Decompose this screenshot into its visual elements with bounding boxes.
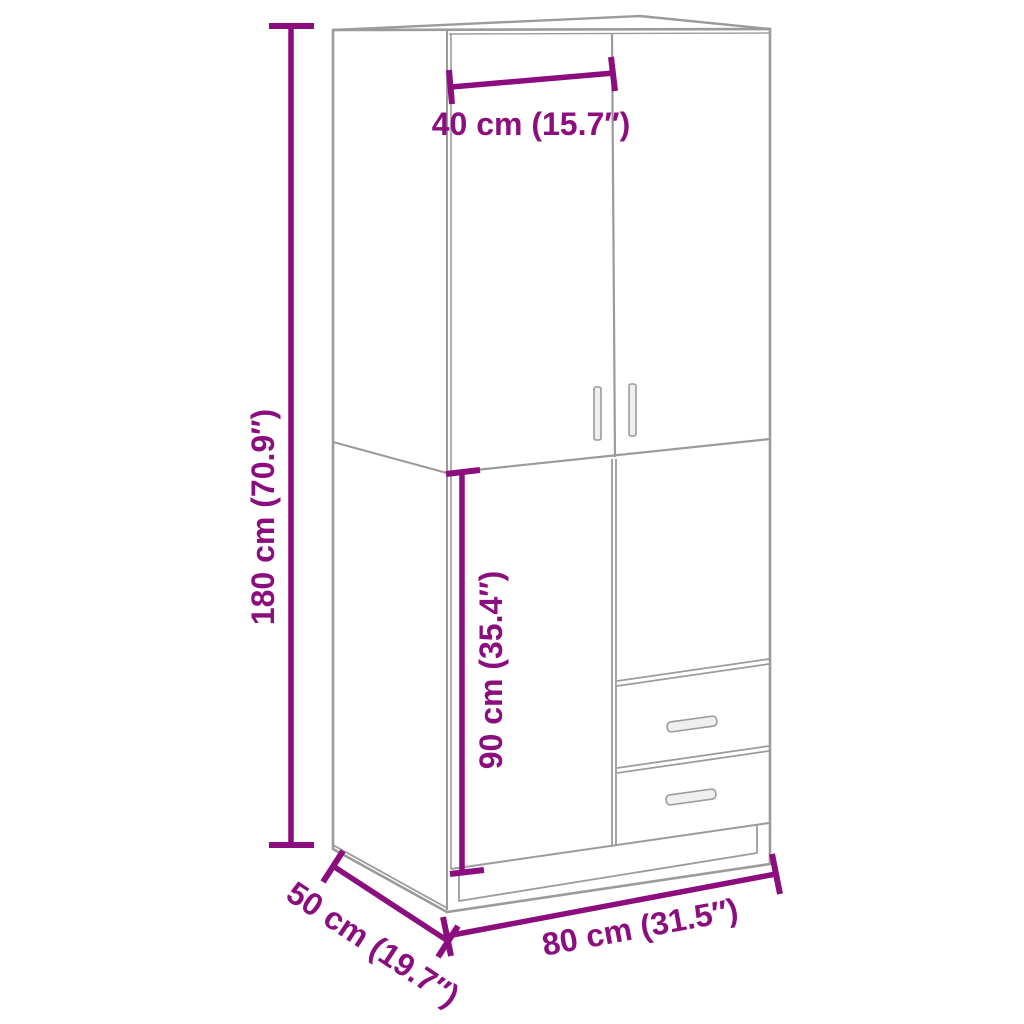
door-width-dimension-label: 40 cm (15.7″) <box>432 108 631 140</box>
dimension-lines <box>269 25 780 957</box>
section-divider-side <box>333 442 447 473</box>
wardrobe-drawing <box>0 0 1024 1024</box>
wardrobe-body <box>333 29 770 912</box>
door-width-dimension-line <box>449 57 615 104</box>
right-door-handle <box>629 384 636 436</box>
plinth-inset <box>459 824 757 901</box>
door-top-seam <box>449 33 769 34</box>
drawer1-handle <box>667 716 718 733</box>
drawer1-top-seam-inner <box>617 664 769 686</box>
wardrobe-outline <box>333 16 770 912</box>
drawer1-top-seam <box>617 659 769 681</box>
left-door-handle <box>594 387 601 440</box>
dimension-diagram: 180 cm (70.9″) 40 cm (15.7″) 90 cm (35.4… <box>0 0 1024 1024</box>
height-dimension-label: 180 cm (70.9″) <box>247 409 279 625</box>
drawer-gap-seam-inner <box>617 751 769 773</box>
drawer-gap-seam <box>617 746 769 768</box>
section-divider <box>447 439 770 473</box>
lower-height-dimension-label: 90 cm (35.4″) <box>475 571 507 770</box>
panel-bottom-seam <box>451 823 769 869</box>
upper-door-divider <box>612 33 615 457</box>
drawer2-handle <box>666 789 717 806</box>
